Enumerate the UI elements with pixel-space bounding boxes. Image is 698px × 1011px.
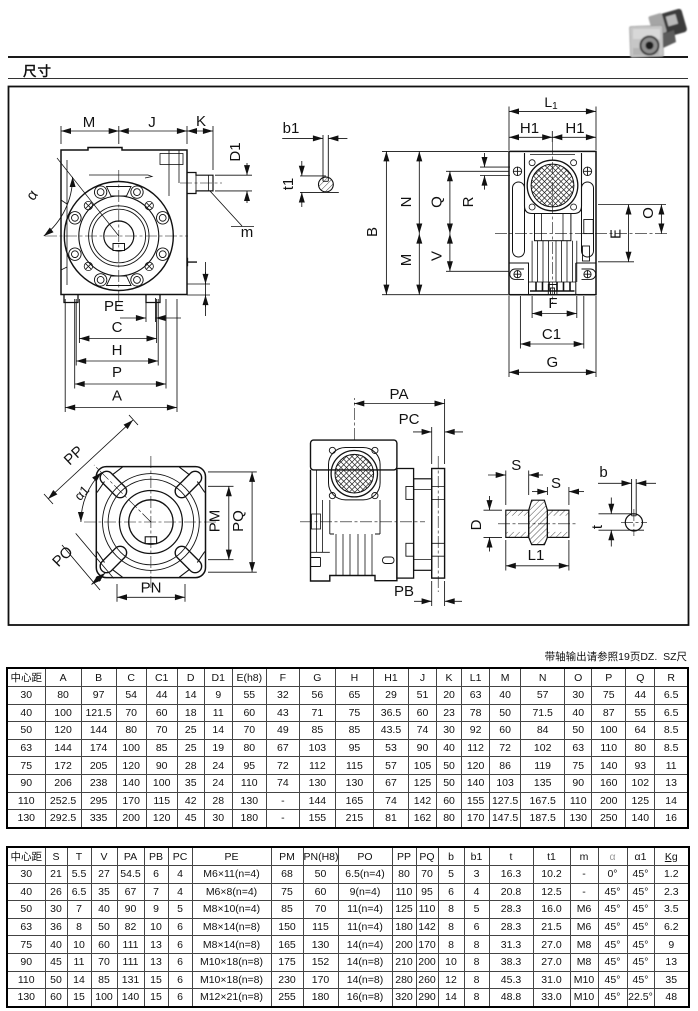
svg-text:S: S (551, 475, 561, 492)
svg-text:H1: H1 (565, 120, 584, 137)
svg-text:P: P (112, 364, 122, 381)
svg-text:b: b (599, 464, 607, 481)
svg-text:PQ: PQ (230, 510, 247, 532)
svg-text:S: S (511, 457, 521, 474)
svg-text:Q: Q (429, 196, 446, 208)
svg-text:O: O (640, 207, 657, 219)
svg-text:t1: t1 (280, 178, 297, 191)
svg-text:H: H (112, 342, 123, 359)
svg-text:PN: PN (141, 580, 162, 597)
svg-text:K: K (196, 113, 206, 130)
svg-text:N: N (398, 197, 415, 208)
svg-text:T: T (184, 257, 201, 266)
svg-text:D: D (468, 519, 485, 530)
svg-text:H1: H1 (520, 120, 539, 137)
svg-text:M: M (83, 114, 96, 131)
svg-text:α: α (23, 187, 42, 204)
svg-text:B: B (364, 227, 381, 237)
svg-text:PE: PE (104, 298, 124, 315)
svg-text:A: A (112, 388, 122, 405)
svg-text:b1: b1 (283, 120, 300, 137)
svg-text:t: t (589, 524, 606, 529)
svg-text:L1: L1 (544, 94, 558, 112)
svg-text:C: C (112, 319, 123, 336)
svg-text:PM: PM (207, 510, 224, 533)
svg-text:V: V (429, 251, 446, 261)
svg-text:PB: PB (394, 583, 414, 600)
svg-text:α1: α1 (71, 482, 92, 503)
svg-text:C1: C1 (542, 326, 561, 343)
svg-text:M: M (398, 254, 415, 267)
svg-text:E: E (608, 229, 625, 239)
svg-text:L1: L1 (528, 547, 545, 564)
svg-text:PO: PO (49, 543, 76, 570)
svg-text:J: J (148, 114, 156, 131)
svg-text:F: F (548, 295, 557, 312)
svg-text:D1: D1 (227, 142, 244, 161)
svg-text:m: m (241, 224, 254, 241)
svg-text:R: R (460, 196, 477, 207)
svg-text:PA: PA (390, 386, 409, 403)
svg-text:G: G (546, 354, 558, 371)
svg-text:PC: PC (399, 411, 420, 428)
svg-text:PP: PP (61, 443, 87, 469)
